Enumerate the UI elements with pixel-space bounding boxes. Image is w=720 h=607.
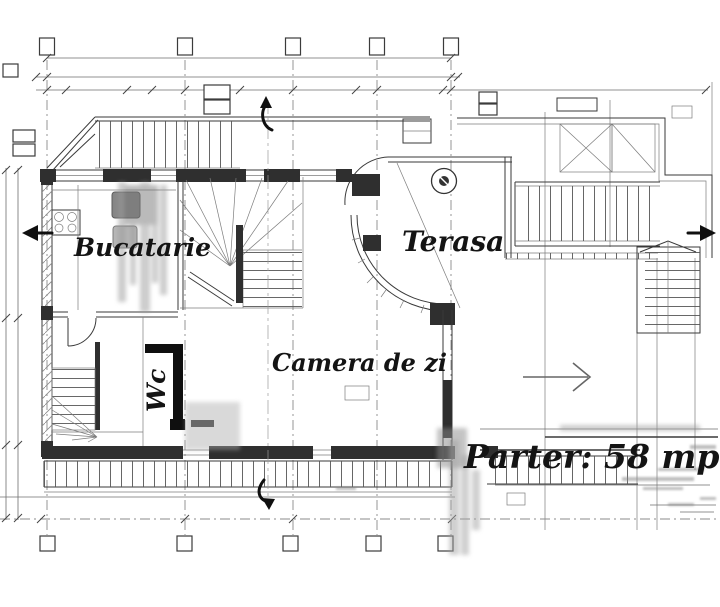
hall-smudge <box>185 402 240 450</box>
section-arrow-left <box>22 225 38 241</box>
roof-box <box>557 98 597 111</box>
stair-newel-wall <box>236 225 243 303</box>
grid-marker <box>177 536 192 551</box>
grid-marker <box>366 536 381 551</box>
chimney <box>204 85 230 114</box>
chimney-2 <box>479 92 497 115</box>
dimension-lines-top <box>36 58 708 90</box>
grid-marker <box>444 38 459 55</box>
east-stairs-treads <box>520 186 658 241</box>
top-wall-pier <box>264 169 300 182</box>
bottom-wall-segment <box>42 446 183 459</box>
living-room-outlet <box>345 386 369 400</box>
top-wall-pier <box>336 169 352 182</box>
small-rect-bottom <box>507 493 525 505</box>
door-swing <box>68 318 96 346</box>
area-label: Parter: 58 mp <box>463 437 719 476</box>
canopy-rafters <box>95 121 240 168</box>
section-arrowhead-top <box>260 96 272 108</box>
section-arrowhead-bottom <box>262 498 275 510</box>
grid-marker <box>370 38 385 55</box>
east-rail-posts <box>505 253 658 259</box>
stove <box>52 210 80 235</box>
terrace-column <box>432 169 457 194</box>
grid-marker <box>40 38 55 55</box>
room-label-bucatarie: Bucatarie <box>73 233 211 262</box>
grid-marker <box>40 536 55 551</box>
room-label-wc: Wc <box>142 369 171 412</box>
section-arrow-right <box>700 225 716 241</box>
room-label-terasa: Terasa <box>402 225 504 258</box>
top-wall-pier <box>176 169 246 182</box>
terrace-pier <box>352 174 380 196</box>
top-wall-pier <box>103 169 151 182</box>
left-wall-pier <box>41 169 53 185</box>
stair-landing-edge <box>188 272 234 306</box>
roof-box-small <box>672 106 692 118</box>
grid-markers-bottom <box>40 536 453 551</box>
terrace-right-edge <box>505 157 511 258</box>
grid-marker-left <box>13 144 35 156</box>
grid-marker-left <box>3 64 18 77</box>
deck-rail-posts-left <box>44 461 452 487</box>
lobby-wall <box>95 342 100 430</box>
exterior-walls <box>40 169 455 460</box>
se-stairs-treads <box>645 247 700 333</box>
floor-plan-canvas: Bucatarie Terasa Camera de zi Wc Parter:… <box>0 0 720 607</box>
direction-arrow <box>523 363 590 391</box>
grid-marker <box>286 38 301 55</box>
canopy-slope-edge <box>47 117 98 170</box>
terrace-pier <box>363 235 381 251</box>
left-wall-pier <box>41 306 53 320</box>
room-label-camera-de-zi: Camera de zi <box>272 348 447 377</box>
dimension-lines-left <box>6 168 18 520</box>
stair-treads <box>243 250 302 308</box>
hall-wall <box>52 312 178 317</box>
grid-marker <box>283 536 298 551</box>
grid-marker <box>178 38 193 55</box>
bottom-wall-segment <box>331 446 455 459</box>
southeast-stairs <box>637 241 700 333</box>
grid-marker-left <box>13 130 35 142</box>
floor-plan-drawing: Bucatarie Terasa Camera de zi Wc Parter:… <box>0 0 720 607</box>
basement-stair-treads <box>52 368 95 426</box>
grid-markers-top <box>40 38 459 55</box>
gable-braces <box>560 124 655 172</box>
canopy-roof <box>47 85 431 170</box>
terrace-top-edge <box>388 157 512 162</box>
